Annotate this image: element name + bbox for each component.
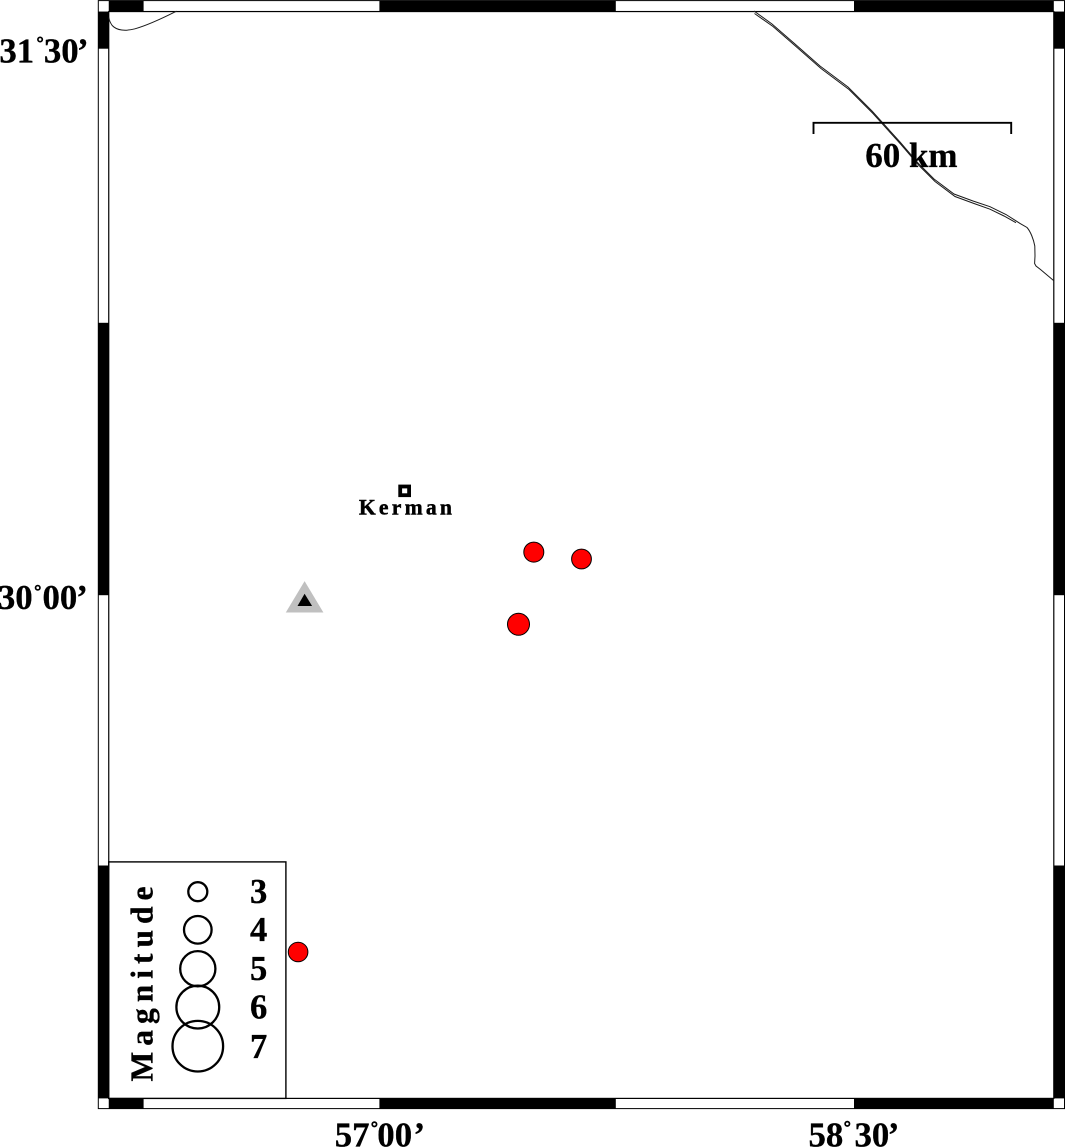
svg-text:31: 31 <box>0 31 34 70</box>
svg-text:Magnitude: Magnitude <box>125 880 160 1081</box>
svg-text:30: 30 <box>855 1115 890 1147</box>
svg-text:7: 7 <box>250 1028 267 1066</box>
svg-text:’: ’ <box>77 31 89 70</box>
svg-text:’: ’ <box>76 578 88 617</box>
svg-text:6: 6 <box>250 988 267 1026</box>
svg-text:Kerman: Kerman <box>359 495 455 519</box>
svg-text:00: 00 <box>377 1115 412 1147</box>
svg-text:00: 00 <box>43 578 78 617</box>
svg-text:’: ’ <box>414 1115 426 1147</box>
svg-text:57: 57 <box>335 1115 370 1147</box>
svg-text:4: 4 <box>250 911 267 949</box>
svg-text:’: ’ <box>888 1115 900 1147</box>
svg-text:30: 30 <box>44 31 79 70</box>
svg-text:58: 58 <box>809 1115 844 1147</box>
svg-text:3: 3 <box>250 873 267 911</box>
svg-text:5: 5 <box>250 950 267 988</box>
svg-text:60 km: 60 km <box>865 136 957 175</box>
svg-text:30: 30 <box>0 578 33 617</box>
